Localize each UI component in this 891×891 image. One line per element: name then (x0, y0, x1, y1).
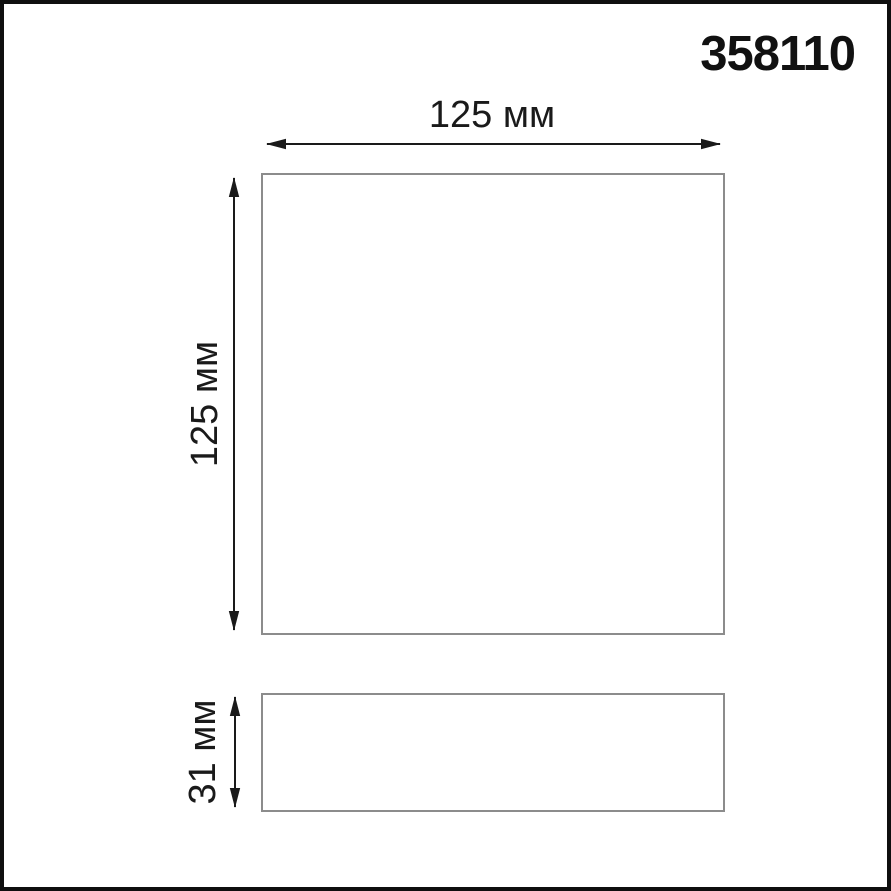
front-face-outline (261, 173, 725, 635)
depth-dimension-label: 31 мм (184, 699, 222, 804)
diagram-canvas: 358110 125 мм 125 мм 31 мм (0, 0, 891, 891)
base-profile-outline (261, 693, 725, 812)
width-dimension-label: 125 мм (429, 96, 555, 134)
article-number: 358110 (700, 30, 855, 79)
height-dimension-label: 125 мм (186, 341, 224, 467)
